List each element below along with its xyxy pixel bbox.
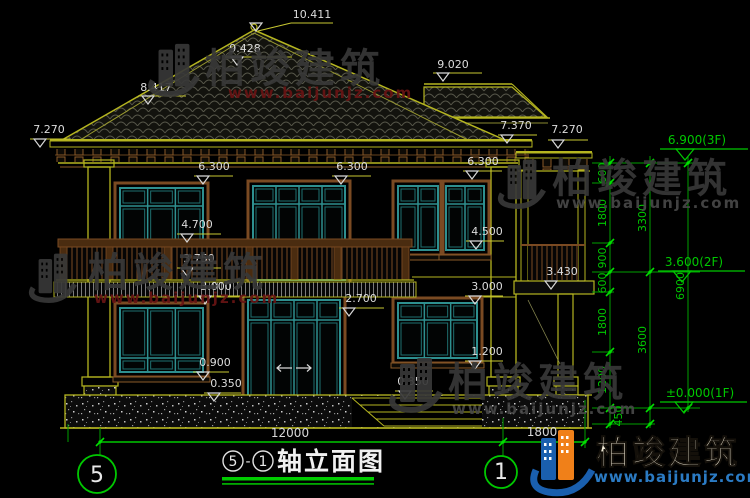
dim-dot — [648, 406, 651, 409]
level-label: 7.270 — [33, 123, 65, 136]
level-label: 9.020 — [437, 58, 469, 71]
brand-logo: 柏竣建筑 www.baijunjz.com — [534, 430, 750, 493]
title-separator: - — [245, 454, 250, 470]
cad-canvas: 10.4119.4288.4179.0207.2707.3707.2706.30… — [0, 0, 750, 498]
level-marker-slab-bottom-right: 3.000 — [465, 280, 503, 304]
window-sill — [439, 255, 491, 260]
level-marker-right-wing-ridge: 9.020 — [433, 58, 482, 81]
level-label: 0.900 — [199, 356, 231, 369]
window-1f-right — [391, 298, 484, 368]
level-label: 6.300 — [198, 160, 230, 173]
level-marker-peak: 10.411 — [250, 8, 333, 31]
logo-tower-blue — [541, 438, 556, 480]
dim-600-b: 600 — [596, 273, 609, 294]
level-3f: 6.900(3F) — [668, 133, 726, 147]
title-text: 轴立面图 — [277, 447, 385, 476]
axis-5: 5 — [90, 463, 104, 488]
peak-leader — [258, 23, 291, 31]
dim-1800-bottom: 1800 — [527, 425, 558, 439]
level-label: 1.200 — [471, 345, 503, 358]
level-label: 4.700 — [181, 218, 213, 231]
dim-6900: 6900 — [674, 272, 687, 300]
entry-door — [243, 295, 345, 403]
level-label: 6.300 — [336, 160, 368, 173]
dim-1800-b: 1800 — [596, 308, 609, 336]
logo-brand: 柏竣建筑 — [596, 433, 740, 472]
elevation-drawing: 10.4119.4288.4179.0207.2707.3707.2706.30… — [0, 0, 750, 498]
level-2f: 3.600(2F) — [665, 255, 723, 269]
railing-post — [334, 247, 341, 280]
watermark-url: www.baijunjz.com — [94, 289, 279, 307]
title-axis-b: 1 — [259, 454, 268, 470]
level-label: 7.370 — [500, 119, 532, 132]
level-label: 2.700 — [345, 292, 377, 305]
level-label: 6.300 — [467, 155, 499, 168]
level-label: 3.430 — [546, 265, 578, 278]
dim-dot — [98, 440, 101, 443]
axis-1: 1 — [494, 460, 508, 485]
level-marker-window-head-2f-right: 6.300 — [463, 155, 502, 179]
window-2f-right-b — [439, 181, 491, 260]
title-underline-2 — [222, 483, 374, 485]
dim-3600: 3600 — [636, 326, 649, 354]
main-eave — [50, 140, 532, 167]
dim-dot — [583, 440, 586, 443]
level-marker-eave-right-porch: 7.270 — [548, 123, 588, 148]
logo-url: www.baijunjz.com — [594, 468, 750, 486]
window-1f-left — [113, 303, 210, 382]
watermark-url: www.baijunjz.com — [556, 194, 741, 212]
dim-dot — [648, 422, 651, 425]
dim-12000: 12000 — [271, 426, 309, 440]
dim-dot — [608, 241, 611, 244]
dim-dot — [501, 440, 504, 443]
level-label: 4.500 — [471, 225, 503, 238]
level-1f: ±0.000(1F) — [666, 386, 734, 400]
drawing-title: 5 - 1 轴立面图 — [222, 447, 385, 485]
watermark-url: www.baijunjz.com — [228, 84, 413, 102]
watermark-url: www.baijunjz.com — [452, 400, 637, 418]
level-label: 0.350 — [210, 377, 242, 390]
dim-dot — [608, 350, 611, 353]
title-axis-a: 5 — [229, 454, 238, 470]
railing-post — [291, 247, 298, 280]
railing-post — [402, 247, 409, 280]
title-underline — [222, 477, 374, 481]
level-label: 10.411 — [293, 8, 332, 21]
window-sill — [113, 377, 210, 382]
level-label: 7.270 — [551, 123, 583, 136]
level-marker-window-head-2f-left: 6.300 — [194, 160, 233, 184]
dim-dot — [648, 270, 651, 273]
dim-900: 900 — [596, 248, 609, 269]
level-label: 3.000 — [471, 280, 503, 293]
